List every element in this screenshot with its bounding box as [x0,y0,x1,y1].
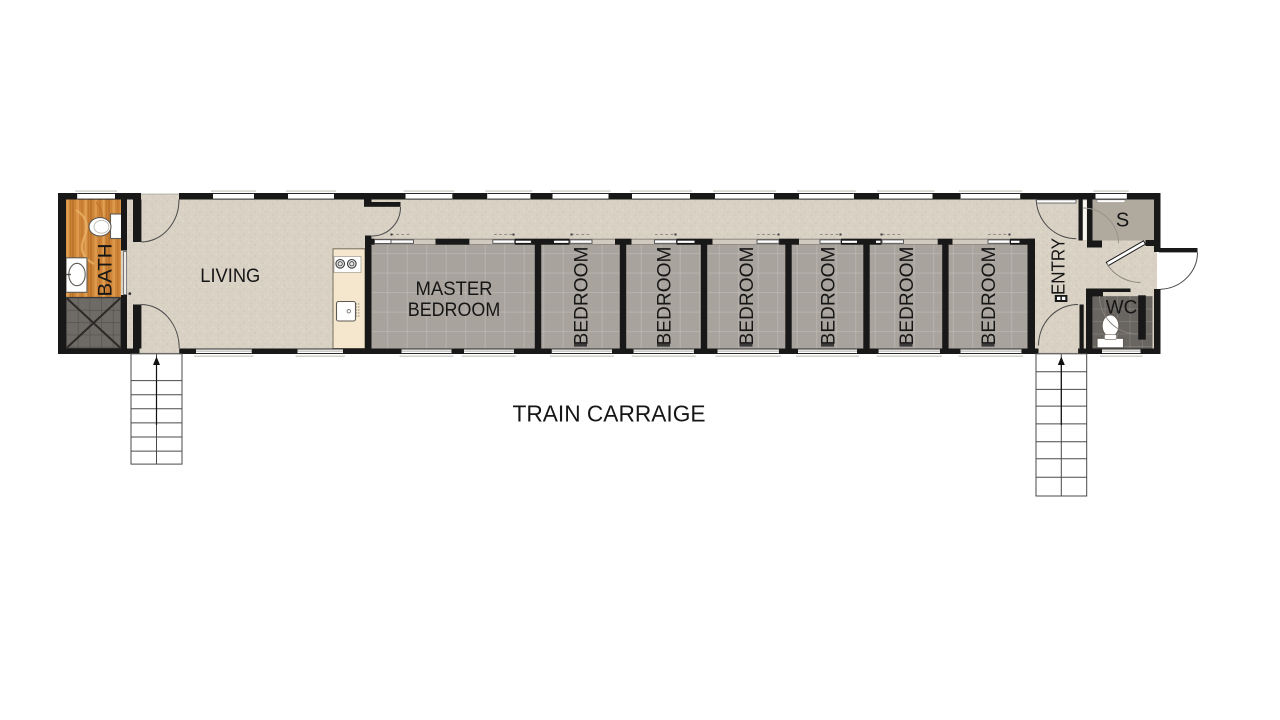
svg-text:BEDROOM: BEDROOM [818,247,839,346]
svg-text:BEDROOM: BEDROOM [737,247,758,346]
svg-text:LIVING: LIVING [200,266,260,287]
svg-text:BATH: BATH [95,244,116,297]
svg-text:BEDROOM: BEDROOM [654,247,675,346]
svg-text:BEDROOM: BEDROOM [897,247,918,346]
svg-text:ENTRY: ENTRY [1048,238,1068,295]
svg-text:MASTER: MASTER [416,279,493,300]
svg-text:BEDROOM: BEDROOM [979,247,1000,346]
svg-text:BEDROOM: BEDROOM [571,247,592,346]
svg-text:TRAIN CARRAIGE: TRAIN CARRAIGE [513,401,706,427]
svg-text:BEDROOM: BEDROOM [408,300,501,321]
svg-text:WC: WC [1106,297,1138,318]
svg-text:S: S [1116,210,1129,232]
